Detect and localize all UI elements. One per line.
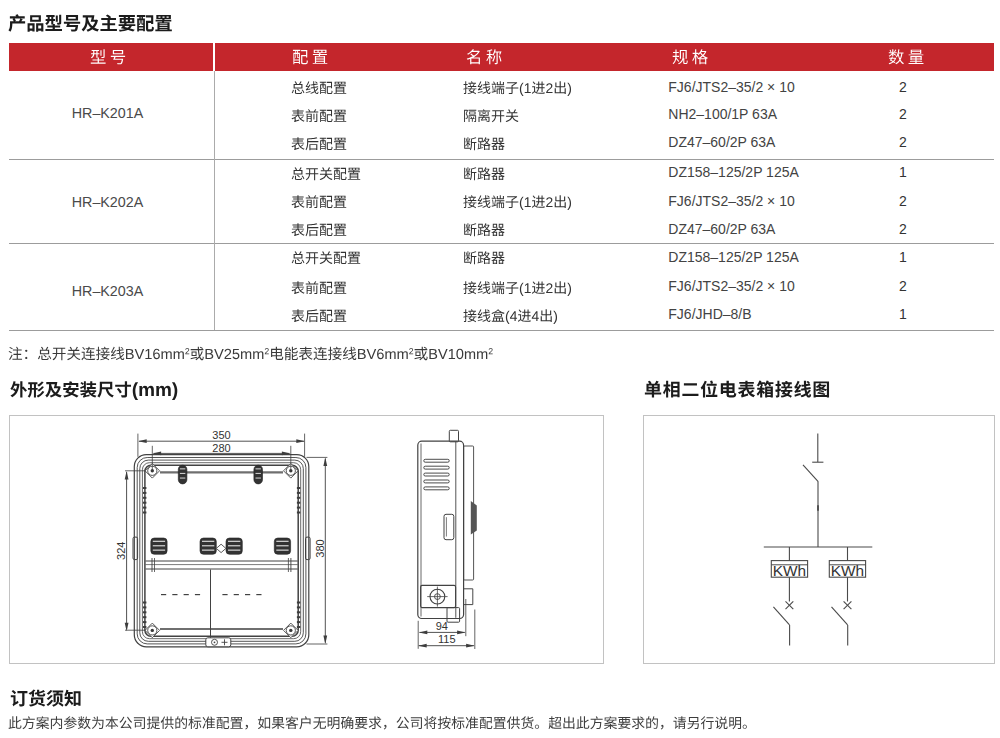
svg-text:KWh: KWh [831, 562, 864, 579]
svg-text:KWh: KWh [773, 562, 806, 579]
